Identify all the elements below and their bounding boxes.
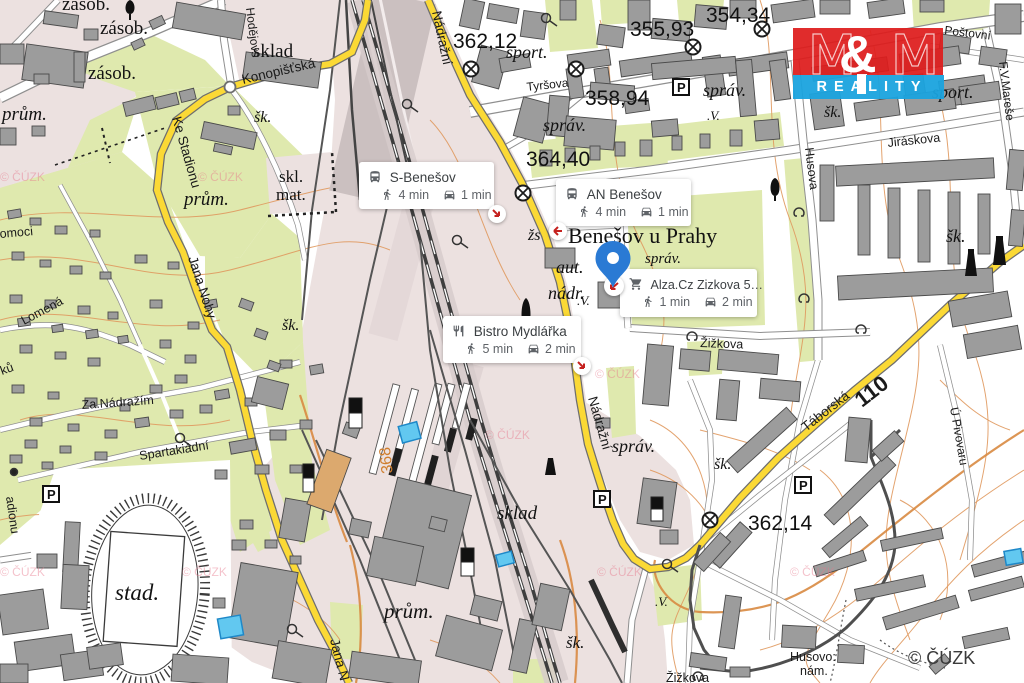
svg-text:nám.: nám.	[800, 664, 828, 678]
svg-text:362,14: 362,14	[748, 512, 813, 535]
svg-text:aut.: aut.	[556, 257, 584, 277]
svg-text:správ.: správ.	[703, 80, 746, 100]
svg-text:Žižkova: Žižkova	[666, 670, 709, 683]
svg-text:Žižkova: Žižkova	[700, 335, 744, 351]
svg-text:zásob.: zásob.	[88, 63, 136, 84]
svg-text:355,93: 355,93	[630, 18, 694, 41]
svg-text:správ.: správ.	[612, 436, 655, 456]
svg-text:prům.: prům.	[182, 189, 229, 210]
svg-text:.V.: .V.	[655, 594, 668, 609]
svg-text:omoci: omoci	[0, 224, 33, 241]
svg-text:prům.: prům.	[0, 104, 47, 125]
svg-text:stad.: stad.	[115, 580, 159, 605]
svg-text:P: P	[677, 80, 686, 95]
svg-text:nádr.: nádr.	[548, 283, 585, 303]
svg-text:prům.: prům.	[382, 599, 434, 623]
svg-text:358,94: 358,94	[585, 87, 650, 110]
svg-text:zásob.: zásob.	[62, 0, 110, 15]
svg-text:364,40: 364,40	[526, 148, 590, 171]
svg-text:šk.: šk.	[566, 633, 584, 652]
svg-text:šk.: šk.	[254, 109, 271, 126]
svg-text:správ.: správ.	[543, 115, 586, 135]
svg-text:P: P	[799, 478, 808, 493]
svg-text:362,12: 362,12	[453, 30, 517, 53]
svg-text:mat.: mat.	[276, 185, 306, 204]
svg-text:Benešov u Prahy: Benešov u Prahy	[568, 223, 717, 248]
svg-text:Husovo:: Husovo:	[790, 650, 836, 664]
svg-text:P: P	[47, 487, 56, 502]
svg-text:žs: žs	[527, 227, 540, 244]
svg-text:skl.: skl.	[279, 167, 303, 186]
svg-text:zásob.: zásob.	[100, 18, 148, 39]
svg-text:šk.: šk.	[946, 226, 966, 246]
svg-text:sklad: sklad	[497, 503, 538, 524]
svg-text:správ.: správ.	[645, 251, 681, 267]
svg-text:368: 368	[377, 446, 397, 474]
svg-text:šk.: šk.	[714, 456, 731, 473]
svg-text:.V.: .V.	[707, 108, 720, 123]
svg-text:šk.: šk.	[282, 317, 299, 334]
svg-text:šk.: šk.	[824, 104, 841, 121]
svg-text:354,34: 354,34	[706, 4, 771, 27]
svg-text:P: P	[598, 492, 607, 507]
